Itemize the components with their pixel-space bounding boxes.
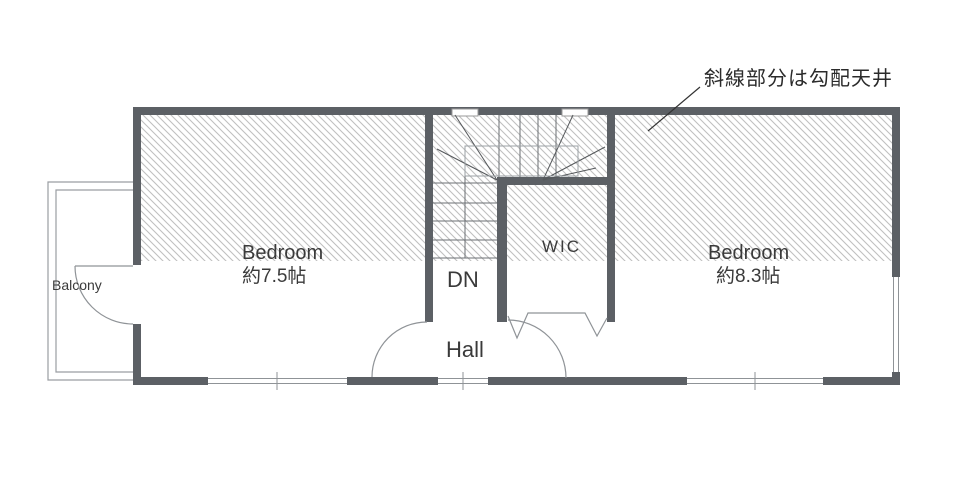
balcony-label: Balcony [52,277,102,293]
window-bottom-right [687,372,823,390]
window-right-wall [893,277,899,372]
wall-bedroom-right [607,115,615,322]
window-bottom-hall [438,372,488,390]
wall-bedroom-left [425,115,433,322]
doors [75,266,607,378]
bedroom-left-size: 約7.5帖 [242,265,306,287]
hall-label: Hall [446,337,484,362]
window-stair-left [452,109,478,116]
wall-bottom-1 [133,377,208,385]
wall-bottom-2 [347,377,438,385]
balcony-door [75,266,133,324]
window-bottom-left [208,372,347,390]
floor-plan-svg: 斜線部分は勾配天井 Bedroom 約7.5帖 Bedroom 約8.3帖 WI… [0,0,953,485]
window-stair-right [562,109,588,116]
wall-top [133,107,900,115]
wall-left-lower [133,324,141,385]
sloped-ceiling-hatch-region [141,115,892,261]
bedroom-right-size: 約8.3帖 [716,265,780,287]
floor-plan: 斜線部分は勾配天井 Bedroom 約7.5帖 Bedroom 約8.3帖 WI… [0,0,953,485]
bedroom-right-label: Bedroom [708,242,789,264]
bedroom-left-door-arc [372,322,427,377]
wic-folding-door [508,313,607,338]
bedroom-right-door-arc [508,320,566,378]
wall-bottom-3 [488,377,687,385]
wic-label: WIC [542,237,581,256]
wall-stair-wic [497,177,507,322]
door-swing-arc [75,266,133,324]
wall-left-upper [133,115,141,265]
sloped-ceiling-annotation: 斜線部分は勾配天井 [704,67,893,90]
stairs-dn-label: DN [447,267,479,292]
bedroom-left-label: Bedroom [242,242,323,264]
wall-right-upper [892,107,900,277]
wall-bottom-4 [823,377,900,385]
